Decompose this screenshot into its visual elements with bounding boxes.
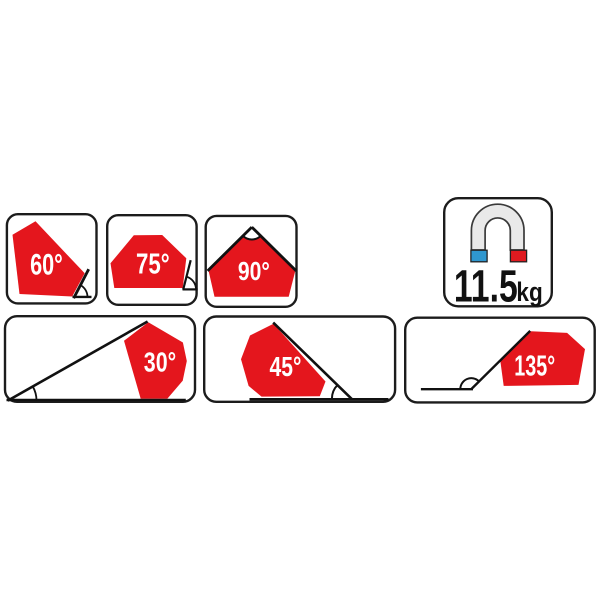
- svg-text:11.5: 11.5: [454, 262, 518, 312]
- svg-text:60°: 60°: [30, 247, 63, 281]
- svg-text:kg: kg: [516, 277, 542, 307]
- svg-text:30°: 30°: [144, 347, 176, 378]
- svg-text:45°: 45°: [270, 352, 302, 382]
- svg-text:75°: 75°: [136, 249, 170, 280]
- svg-text:135°: 135°: [514, 351, 555, 382]
- svg-text:90°: 90°: [238, 257, 270, 287]
